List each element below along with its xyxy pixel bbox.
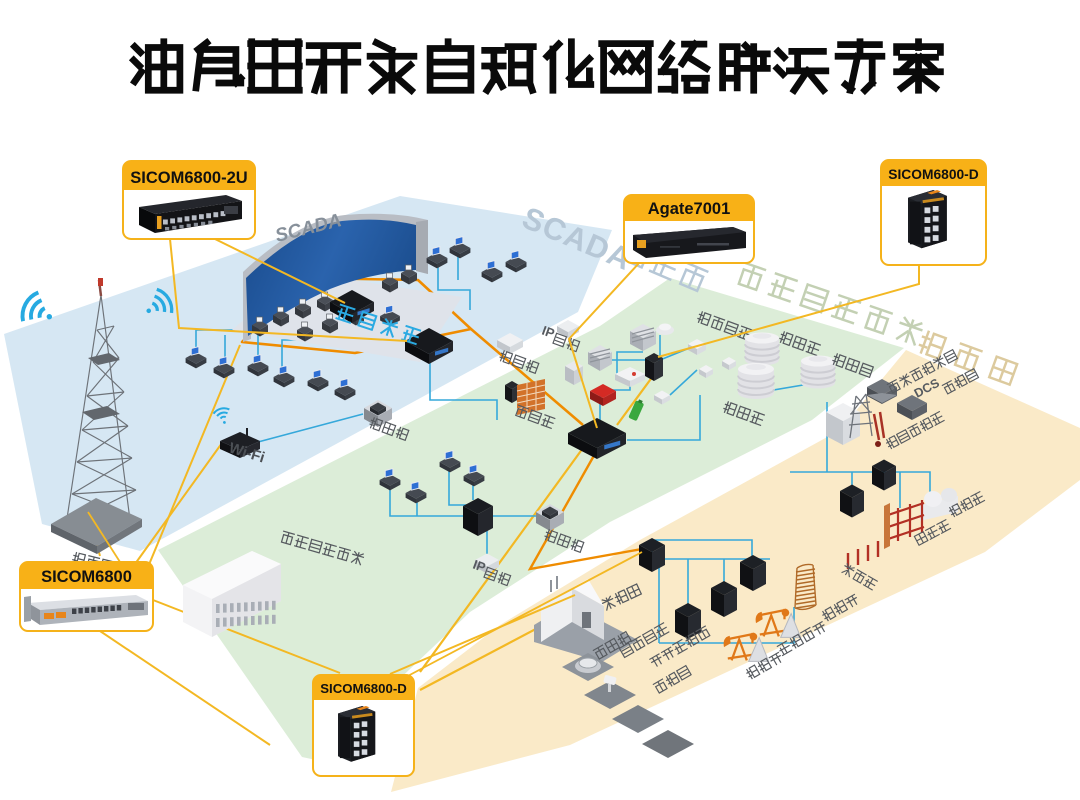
svg-text:Agate7001: Agate7001 (648, 200, 731, 218)
svg-text:SICOM6800-D: SICOM6800-D (320, 681, 406, 696)
svg-text:SICOM6800: SICOM6800 (41, 568, 132, 586)
svg-text:SICOM6800-2U: SICOM6800-2U (130, 169, 247, 187)
svg-text:SICOM6800-D: SICOM6800-D (888, 167, 979, 182)
